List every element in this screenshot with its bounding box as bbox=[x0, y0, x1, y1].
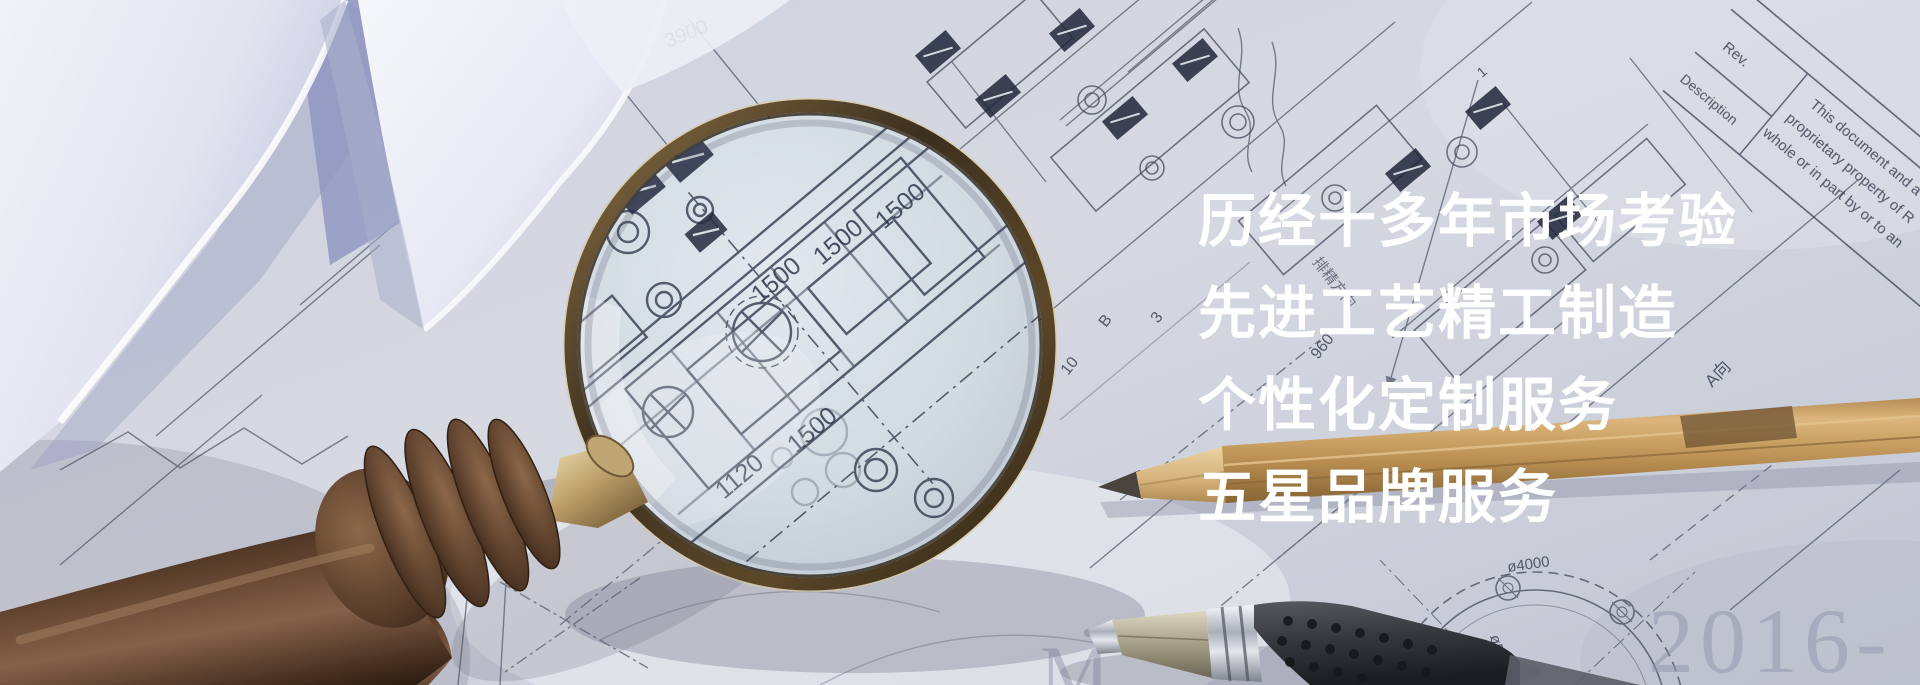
hero-headline: 历经十多年市场考验 先进工艺精工制造 个性化定制服务 五星品牌服务 bbox=[1198, 176, 1738, 544]
headline-line-3: 个性化定制服务 bbox=[1198, 360, 1738, 452]
hero-banner: 3900 8 600 960 2380 1 3 B 10 4 A向 排精方向 ø… bbox=[0, 0, 1920, 685]
headline-line-2: 先进工艺精工制造 bbox=[1198, 268, 1738, 360]
headline-line-4: 五星品牌服务 bbox=[1198, 452, 1738, 544]
watermark-year: 2016- bbox=[1648, 590, 1893, 685]
headline-line-1: 历经十多年市场考验 bbox=[1198, 176, 1738, 268]
pen-chrome-ring bbox=[1206, 605, 1262, 682]
